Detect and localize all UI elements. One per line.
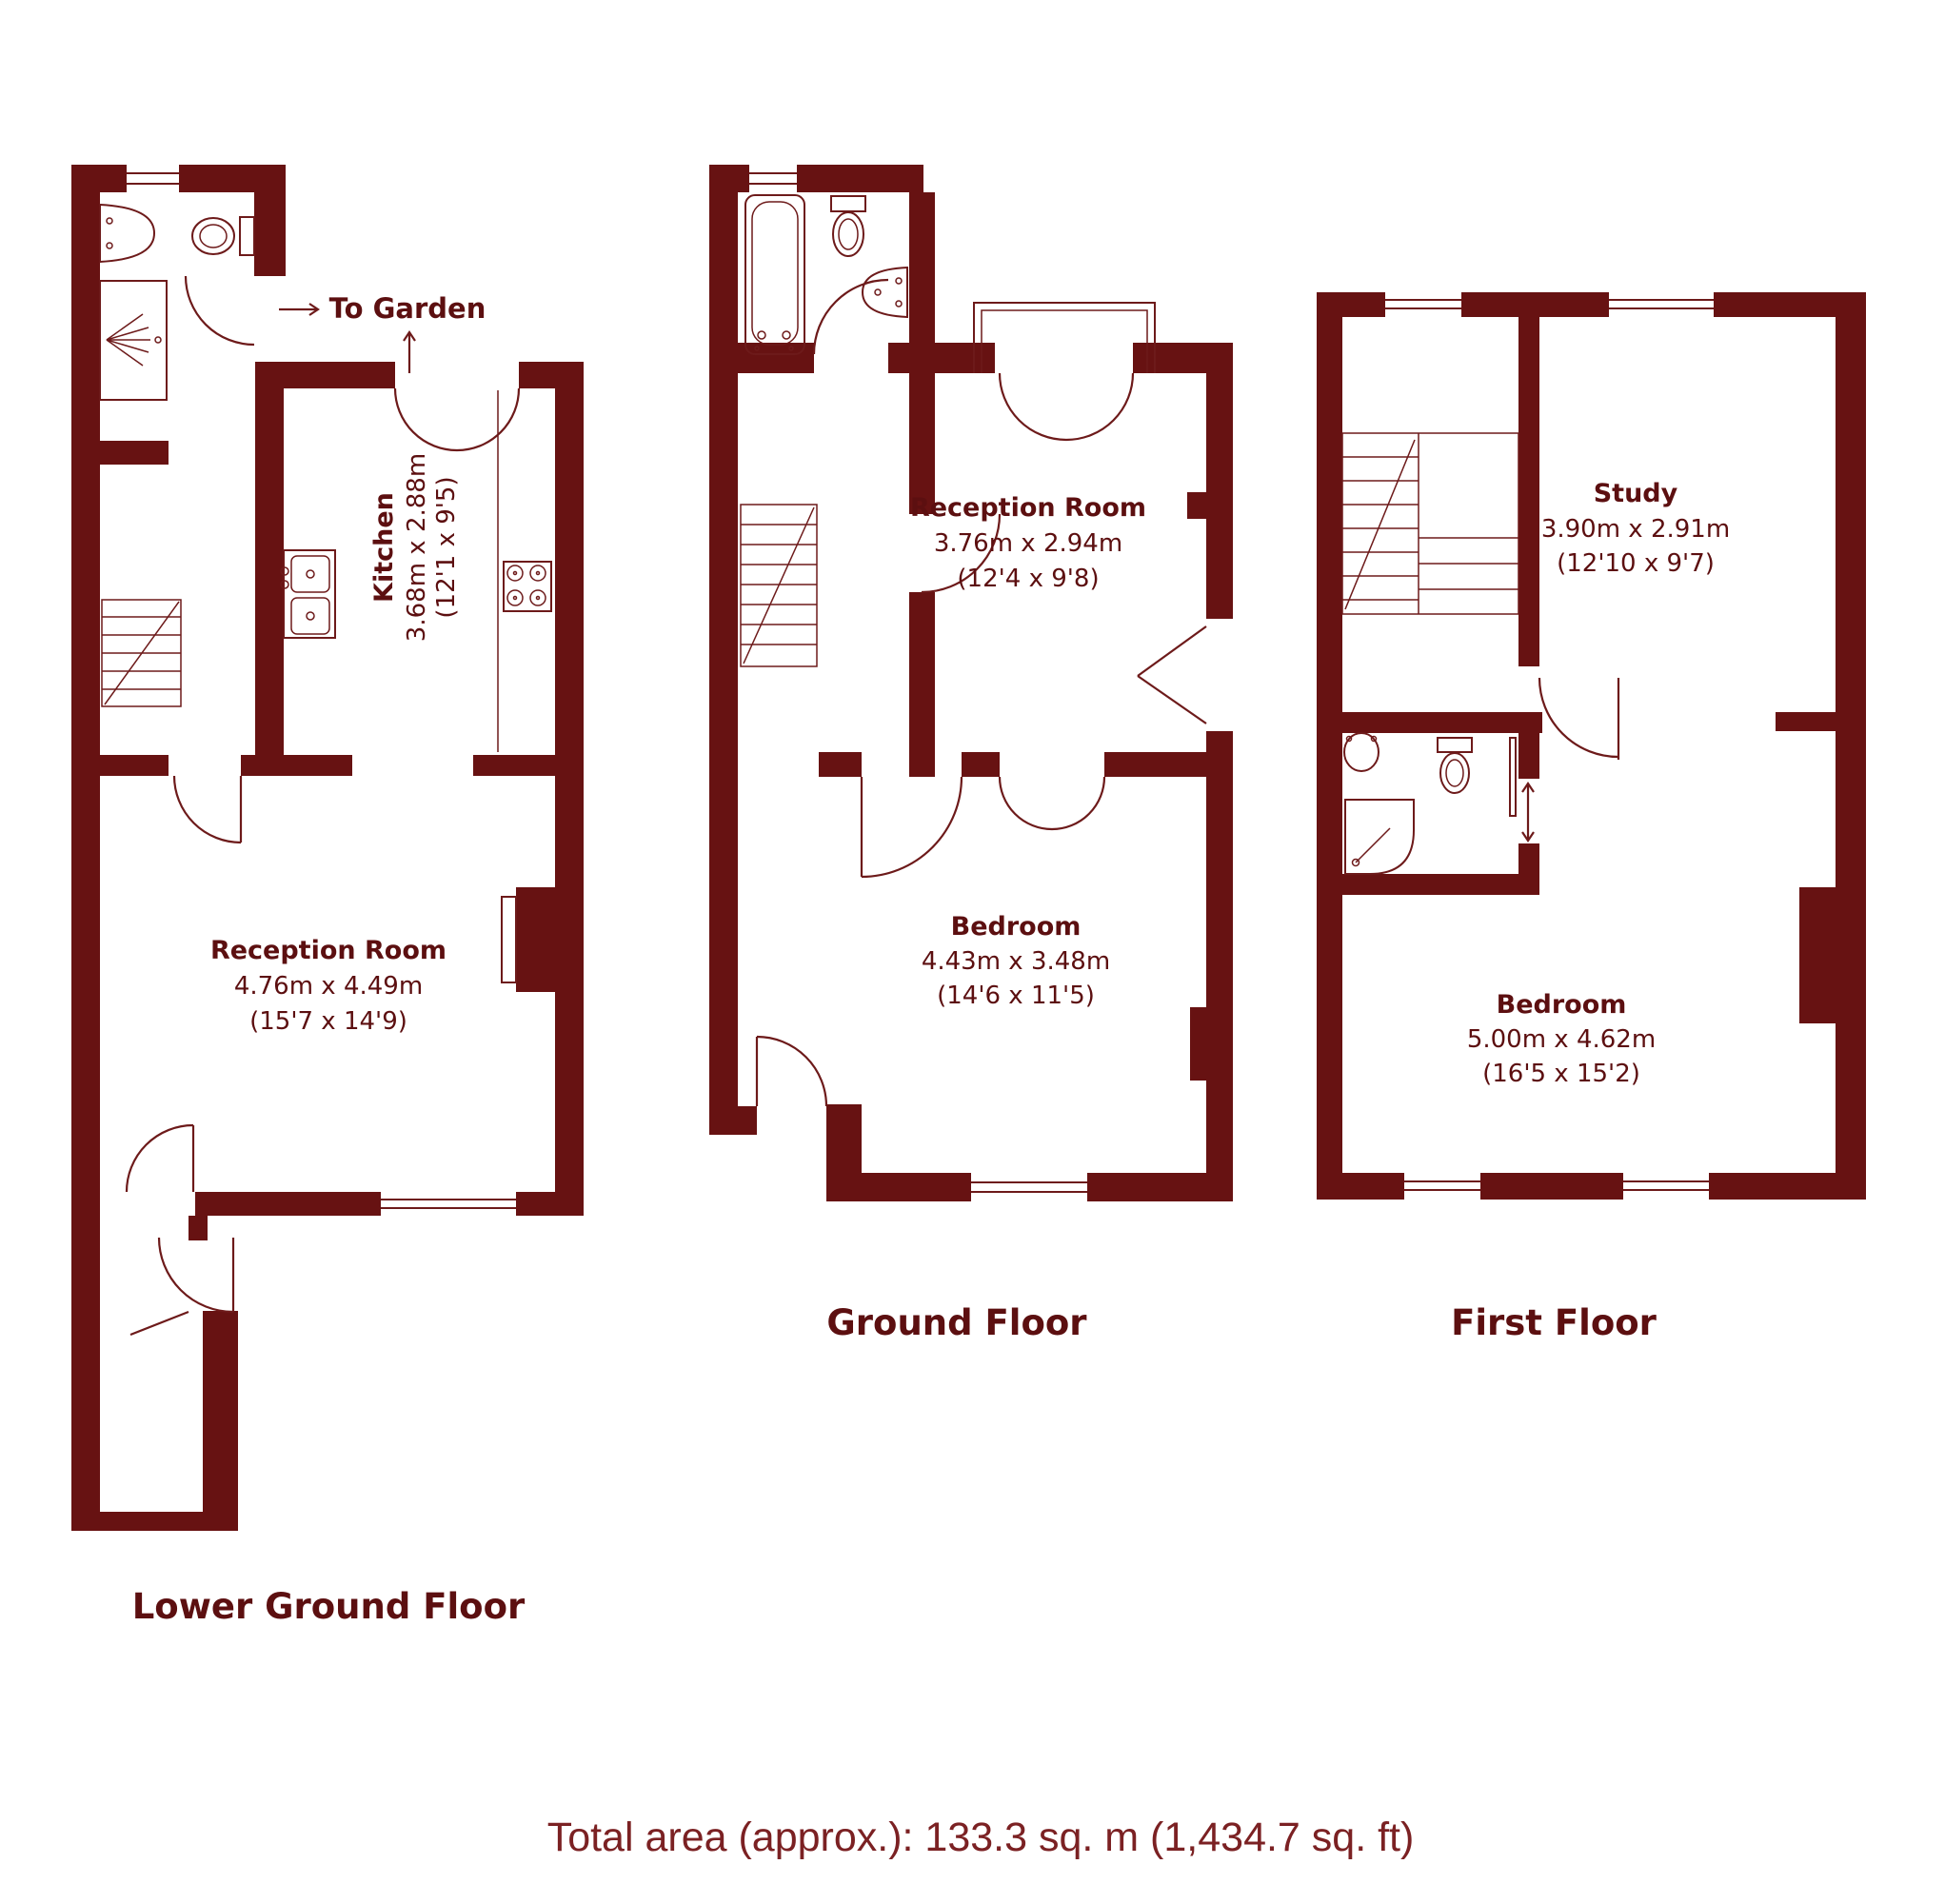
room-name: Study (1594, 479, 1678, 508)
room-name: Kitchen (369, 492, 399, 603)
staircase-icon (1342, 433, 1518, 614)
door-arc (127, 1125, 193, 1192)
door-arc (174, 776, 241, 843)
room-dim-imperial: (14'6 x 11'5) (937, 982, 1095, 1010)
room-dim-imperial: (12'1 x 9'5) (432, 476, 461, 618)
toilet-icon (831, 196, 865, 256)
chimney-breast (1799, 887, 1866, 1023)
room-name: Reception Room (910, 493, 1146, 523)
room-dim-metric: 3.68m x 2.88m (403, 453, 431, 642)
window (749, 165, 797, 192)
floor-label: Lower Ground Floor (132, 1586, 526, 1627)
window (127, 165, 179, 192)
fireplace-icon (502, 897, 516, 982)
staircase-icon (741, 505, 817, 666)
room-name: Bedroom (1497, 990, 1627, 1020)
room-dim-metric: 5.00m x 4.62m (1467, 1025, 1656, 1054)
window (1623, 1173, 1709, 1200)
chimney-breast (1190, 1007, 1233, 1081)
bathtub-icon (745, 195, 804, 354)
door-arc (862, 777, 962, 877)
total-area-label: Total area (approx.): 133.3 sq. m (1,434… (547, 1815, 1415, 1860)
first-floor-plan: Study 3.90m x 2.91m (12'10 x 9'7) Bedroo… (1317, 292, 1866, 1343)
shower-icon (100, 281, 167, 400)
window (381, 1192, 516, 1216)
double-doors (1000, 777, 1104, 829)
door-arc (1539, 678, 1618, 760)
door-arc (159, 1238, 233, 1312)
room-dim-imperial: (12'4 x 9'8) (957, 565, 1099, 593)
lower-ground-floor-plan: To Garden Kitchen 3.68m x 2.88m (12'1 x … (71, 165, 584, 1627)
door-arc (814, 280, 888, 354)
shower-icon (1345, 800, 1414, 874)
room-name: Reception Room (210, 936, 447, 965)
window (1609, 292, 1714, 317)
window (971, 1173, 1087, 1201)
door-arc (186, 276, 254, 345)
ajar-door (1138, 626, 1206, 724)
window (1385, 292, 1461, 317)
walls (71, 165, 584, 1531)
wash-basin-icon (1344, 733, 1379, 771)
room-dim-imperial: (15'7 x 14'9) (249, 1007, 407, 1036)
floor-label: Ground Floor (826, 1302, 1087, 1343)
floor-label: First Floor (1451, 1302, 1657, 1343)
wash-basin-icon (863, 268, 907, 317)
room-dim-metric: 3.76m x 2.94m (934, 529, 1122, 558)
room-dim-metric: 4.43m x 3.48m (922, 947, 1110, 976)
wash-basin-icon (100, 205, 154, 262)
door-arc (757, 1037, 826, 1106)
room-dim-imperial: (12'10 x 9'7) (1557, 549, 1715, 578)
room-dim-metric: 3.90m x 2.91m (1541, 515, 1730, 544)
hob-icon (504, 562, 551, 611)
staircase-icon (102, 600, 181, 706)
floorplan-page: To Garden Kitchen 3.68m x 2.88m (12'1 x … (0, 0, 1945, 1904)
room-dim-imperial: (16'5 x 15'2) (1482, 1060, 1640, 1088)
toilet-icon (1438, 738, 1472, 793)
window (1404, 1173, 1480, 1200)
chimney-breast (516, 887, 584, 992)
to-garden-label: To Garden (329, 292, 486, 325)
bay-window (974, 303, 1155, 440)
floorplan-canvas: To Garden Kitchen 3.68m x 2.88m (12'1 x … (0, 0, 1945, 1904)
toilet-icon (192, 217, 254, 255)
garden-french-doors (395, 388, 519, 450)
ground-floor-plan: Reception Room 3.76m x 2.94m (12'4 x 9'8… (709, 165, 1233, 1343)
room-name: Bedroom (951, 912, 1082, 942)
kitchen-sink-icon (281, 550, 335, 638)
room-dim-metric: 4.76m x 4.49m (234, 972, 423, 1001)
ajar-door (130, 1312, 189, 1335)
